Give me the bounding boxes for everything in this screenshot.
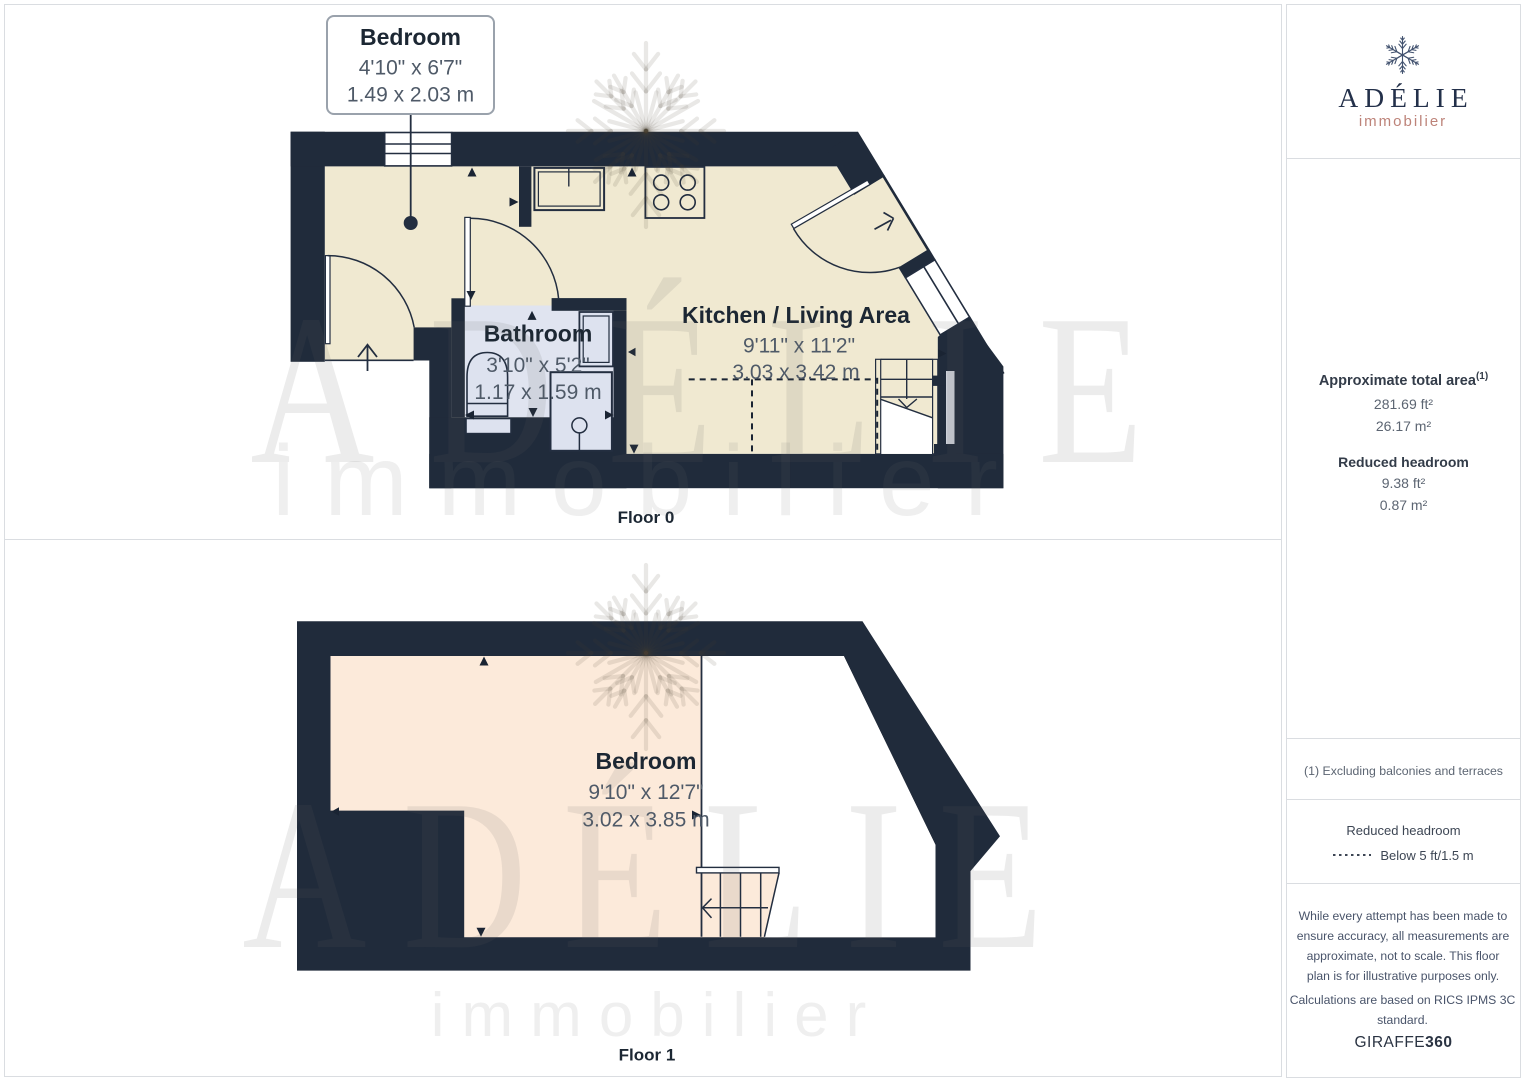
svg-text:ADÉLIE: ADÉLIE	[242, 757, 1079, 994]
svg-text:ADÉLIE: ADÉLIE	[1338, 82, 1473, 113]
svg-text:immobilier: immobilier	[431, 981, 883, 1050]
svg-text:immobilier: immobilier	[272, 425, 1028, 537]
svg-text:1.49 x 2.03 m: 1.49 x 2.03 m	[347, 84, 474, 107]
svg-text:immobilier: immobilier	[1359, 113, 1447, 130]
svg-text:Bedroom: Bedroom	[360, 24, 461, 50]
svg-text:4'10" x 6'7": 4'10" x 6'7"	[359, 57, 463, 80]
